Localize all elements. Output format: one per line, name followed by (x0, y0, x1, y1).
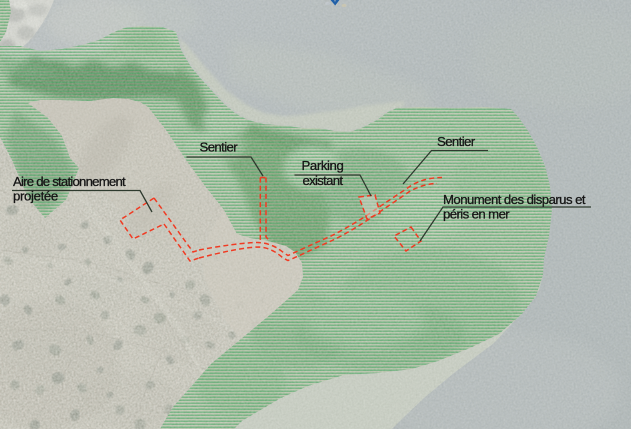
svg-text:péris en mer: péris en mer (443, 207, 510, 222)
svg-text:Parking: Parking (302, 158, 344, 173)
svg-text:projetée: projetée (13, 189, 58, 204)
svg-text:Aire de stationnement: Aire de stationnement (13, 174, 126, 189)
svg-text:existant: existant (303, 173, 344, 188)
svg-text:Monument des disparus et: Monument des disparus et (443, 192, 586, 207)
svg-text:Sentier: Sentier (437, 134, 476, 149)
svg-text:Sentier: Sentier (200, 140, 239, 155)
